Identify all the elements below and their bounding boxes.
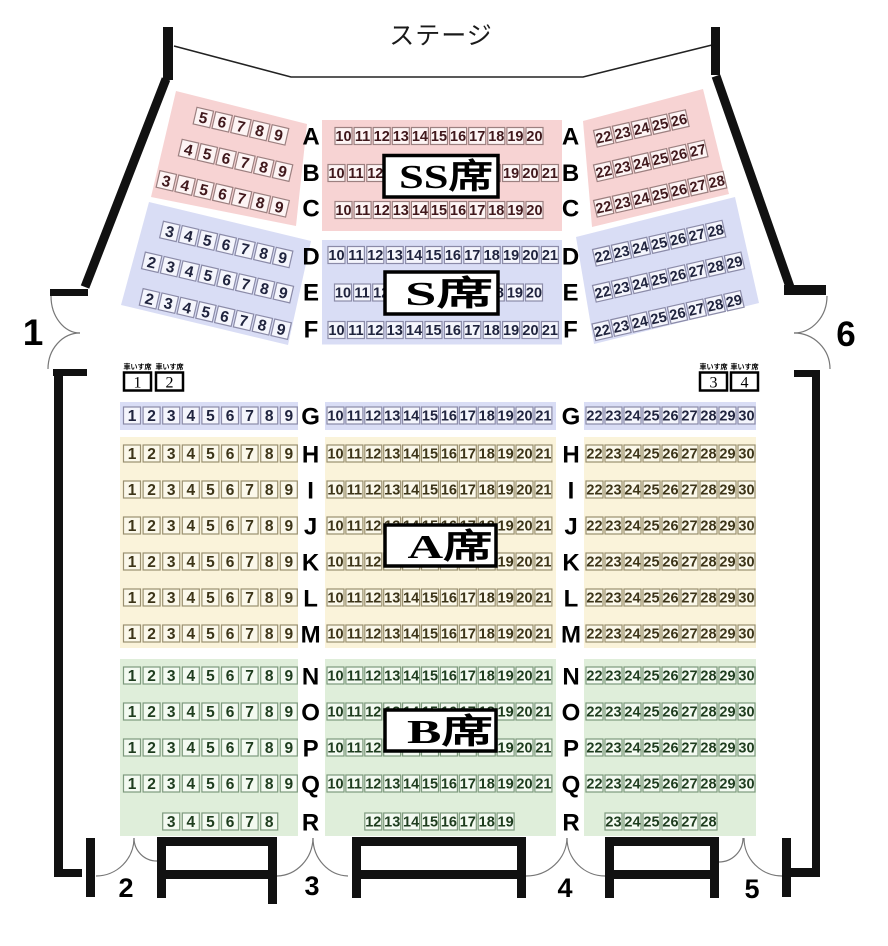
svg-text:20: 20 bbox=[516, 447, 532, 463]
svg-text:20: 20 bbox=[526, 286, 542, 302]
svg-text:30: 30 bbox=[738, 627, 754, 643]
svg-text:A: A bbox=[562, 123, 579, 150]
svg-text:19: 19 bbox=[507, 203, 523, 219]
svg-text:11: 11 bbox=[347, 409, 362, 425]
svg-text:17: 17 bbox=[460, 591, 476, 607]
svg-text:28: 28 bbox=[700, 741, 716, 757]
svg-text:B席: B席 bbox=[407, 713, 493, 751]
svg-text:2: 2 bbox=[147, 668, 156, 685]
svg-text:10: 10 bbox=[327, 591, 343, 607]
svg-text:D: D bbox=[562, 243, 579, 270]
svg-text:24: 24 bbox=[624, 409, 640, 425]
svg-text:I: I bbox=[568, 477, 575, 504]
svg-text:19: 19 bbox=[498, 815, 514, 831]
svg-text:15: 15 bbox=[425, 323, 441, 339]
svg-text:18: 18 bbox=[479, 483, 495, 499]
svg-text:Q: Q bbox=[562, 771, 581, 798]
svg-text:29: 29 bbox=[719, 741, 735, 757]
svg-text:K: K bbox=[302, 549, 320, 576]
svg-text:12: 12 bbox=[365, 815, 381, 831]
svg-text:14: 14 bbox=[406, 248, 422, 264]
svg-text:28: 28 bbox=[700, 669, 716, 685]
svg-text:27: 27 bbox=[681, 741, 697, 757]
svg-text:19: 19 bbox=[498, 705, 514, 721]
svg-text:22: 22 bbox=[586, 591, 602, 607]
svg-text:7: 7 bbox=[245, 776, 254, 793]
svg-text:30: 30 bbox=[738, 555, 754, 571]
svg-text:11: 11 bbox=[347, 447, 362, 463]
svg-text:18: 18 bbox=[488, 129, 504, 145]
svg-text:5: 5 bbox=[206, 518, 215, 535]
svg-text:1: 1 bbox=[23, 312, 44, 353]
svg-text:10: 10 bbox=[328, 323, 344, 339]
svg-text:7: 7 bbox=[245, 814, 254, 831]
svg-text:17: 17 bbox=[460, 483, 476, 499]
svg-text:20: 20 bbox=[516, 777, 532, 793]
svg-text:27: 27 bbox=[681, 627, 697, 643]
svg-text:25: 25 bbox=[643, 777, 659, 793]
svg-text:27: 27 bbox=[681, 815, 697, 831]
svg-text:22: 22 bbox=[586, 409, 602, 425]
svg-text:6: 6 bbox=[226, 482, 235, 499]
svg-text:19: 19 bbox=[507, 286, 523, 302]
svg-text:7: 7 bbox=[245, 668, 254, 685]
svg-text:4: 4 bbox=[741, 375, 749, 392]
svg-text:29: 29 bbox=[719, 705, 735, 721]
svg-text:28: 28 bbox=[706, 297, 725, 316]
svg-text:24: 24 bbox=[624, 741, 640, 757]
svg-text:5: 5 bbox=[744, 874, 759, 904]
svg-text:23: 23 bbox=[605, 741, 621, 757]
svg-text:C: C bbox=[562, 195, 579, 222]
svg-text:21: 21 bbox=[535, 519, 551, 535]
svg-text:19: 19 bbox=[498, 627, 514, 643]
svg-text:14: 14 bbox=[403, 815, 419, 831]
svg-text:9: 9 bbox=[284, 626, 293, 643]
svg-text:27: 27 bbox=[681, 669, 697, 685]
svg-text:13: 13 bbox=[384, 591, 400, 607]
svg-text:30: 30 bbox=[738, 591, 754, 607]
svg-text:23: 23 bbox=[605, 447, 621, 463]
svg-text:30: 30 bbox=[738, 519, 754, 535]
svg-text:22: 22 bbox=[586, 483, 602, 499]
svg-text:15: 15 bbox=[422, 669, 438, 685]
svg-text:A席: A席 bbox=[408, 528, 493, 566]
svg-text:E: E bbox=[562, 279, 578, 306]
svg-text:30: 30 bbox=[738, 741, 754, 757]
svg-text:25: 25 bbox=[643, 409, 659, 425]
svg-text:25: 25 bbox=[643, 627, 659, 643]
svg-text:29: 29 bbox=[719, 627, 735, 643]
svg-text:H: H bbox=[302, 441, 319, 468]
svg-text:26: 26 bbox=[662, 705, 678, 721]
svg-text:21: 21 bbox=[535, 591, 551, 607]
svg-text:O: O bbox=[301, 699, 320, 726]
svg-text:13: 13 bbox=[384, 409, 400, 425]
svg-text:15: 15 bbox=[422, 483, 438, 499]
svg-text:25: 25 bbox=[643, 669, 659, 685]
svg-text:23: 23 bbox=[605, 705, 621, 721]
svg-text:12: 12 bbox=[365, 669, 381, 685]
svg-text:F: F bbox=[304, 316, 319, 343]
svg-text:12: 12 bbox=[365, 591, 381, 607]
svg-text:6: 6 bbox=[226, 626, 235, 643]
svg-text:16: 16 bbox=[441, 591, 457, 607]
svg-text:24: 24 bbox=[624, 815, 640, 831]
svg-text:2: 2 bbox=[147, 482, 156, 499]
svg-text:20: 20 bbox=[522, 166, 538, 182]
svg-text:12: 12 bbox=[374, 203, 390, 219]
svg-text:7: 7 bbox=[245, 590, 254, 607]
svg-text:21: 21 bbox=[535, 483, 551, 499]
svg-text:24: 24 bbox=[624, 519, 640, 535]
svg-text:16: 16 bbox=[445, 323, 461, 339]
svg-text:M: M bbox=[561, 621, 581, 648]
svg-text:17: 17 bbox=[469, 203, 485, 219]
svg-text:15: 15 bbox=[431, 129, 447, 145]
svg-text:28: 28 bbox=[700, 519, 716, 535]
svg-text:20: 20 bbox=[526, 129, 542, 145]
svg-text:23: 23 bbox=[605, 555, 621, 571]
svg-text:30: 30 bbox=[738, 409, 754, 425]
svg-text:3: 3 bbox=[304, 871, 319, 901]
svg-text:30: 30 bbox=[738, 777, 754, 793]
svg-text:3: 3 bbox=[167, 740, 176, 757]
svg-text:10: 10 bbox=[327, 705, 343, 721]
svg-text:10: 10 bbox=[327, 741, 343, 757]
svg-text:29: 29 bbox=[719, 555, 735, 571]
svg-text:18: 18 bbox=[479, 669, 495, 685]
svg-text:16: 16 bbox=[445, 248, 461, 264]
svg-text:7: 7 bbox=[245, 408, 254, 425]
svg-text:J: J bbox=[304, 513, 317, 540]
svg-text:16: 16 bbox=[441, 815, 457, 831]
svg-text:8: 8 bbox=[265, 518, 274, 535]
svg-text:10: 10 bbox=[335, 129, 351, 145]
svg-text:19: 19 bbox=[507, 129, 523, 145]
svg-text:17: 17 bbox=[460, 777, 476, 793]
svg-text:19: 19 bbox=[498, 519, 514, 535]
svg-text:28: 28 bbox=[700, 777, 716, 793]
svg-text:17: 17 bbox=[460, 409, 476, 425]
svg-text:11: 11 bbox=[355, 129, 370, 145]
svg-text:1: 1 bbox=[128, 482, 137, 499]
svg-text:車いす席: 車いす席 bbox=[731, 362, 759, 371]
svg-text:18: 18 bbox=[484, 248, 500, 264]
svg-text:10: 10 bbox=[327, 519, 343, 535]
svg-text:14: 14 bbox=[412, 203, 428, 219]
svg-text:8: 8 bbox=[265, 446, 274, 463]
svg-text:11: 11 bbox=[355, 203, 370, 219]
svg-text:15: 15 bbox=[431, 203, 447, 219]
svg-text:27: 27 bbox=[681, 519, 697, 535]
svg-text:23: 23 bbox=[605, 519, 621, 535]
svg-text:15: 15 bbox=[425, 248, 441, 264]
svg-text:22: 22 bbox=[586, 669, 602, 685]
svg-text:10: 10 bbox=[328, 248, 344, 264]
svg-text:10: 10 bbox=[327, 555, 343, 571]
svg-text:14: 14 bbox=[403, 483, 419, 499]
svg-text:5: 5 bbox=[206, 668, 215, 685]
svg-text:21: 21 bbox=[535, 741, 551, 757]
svg-text:3: 3 bbox=[167, 408, 176, 425]
svg-text:6: 6 bbox=[226, 704, 235, 721]
svg-text:ステージ: ステージ bbox=[389, 22, 493, 50]
svg-text:17: 17 bbox=[460, 627, 476, 643]
svg-text:15: 15 bbox=[422, 627, 438, 643]
svg-text:19: 19 bbox=[498, 555, 514, 571]
svg-text:R: R bbox=[562, 809, 579, 836]
svg-text:23: 23 bbox=[605, 777, 621, 793]
svg-text:22: 22 bbox=[586, 741, 602, 757]
svg-text:2: 2 bbox=[147, 776, 156, 793]
svg-text:11: 11 bbox=[347, 741, 362, 757]
svg-text:8: 8 bbox=[265, 704, 274, 721]
svg-text:20: 20 bbox=[516, 741, 532, 757]
svg-text:8: 8 bbox=[265, 408, 274, 425]
svg-text:1: 1 bbox=[128, 668, 137, 685]
svg-text:2: 2 bbox=[147, 590, 156, 607]
svg-text:23: 23 bbox=[605, 815, 621, 831]
svg-text:6: 6 bbox=[226, 446, 235, 463]
svg-text:9: 9 bbox=[284, 590, 293, 607]
svg-text:9: 9 bbox=[284, 554, 293, 571]
svg-text:9: 9 bbox=[284, 518, 293, 535]
svg-text:19: 19 bbox=[498, 741, 514, 757]
svg-text:F: F bbox=[563, 316, 578, 343]
svg-text:21: 21 bbox=[535, 555, 551, 571]
svg-text:4: 4 bbox=[186, 776, 195, 793]
svg-text:25: 25 bbox=[643, 519, 659, 535]
svg-text:D: D bbox=[302, 243, 319, 270]
svg-text:17: 17 bbox=[460, 815, 476, 831]
svg-text:4: 4 bbox=[557, 873, 572, 903]
svg-text:P: P bbox=[303, 735, 319, 762]
svg-text:2: 2 bbox=[147, 446, 156, 463]
svg-text:10: 10 bbox=[328, 166, 344, 182]
svg-text:21: 21 bbox=[542, 323, 558, 339]
svg-text:8: 8 bbox=[265, 554, 274, 571]
svg-text:3: 3 bbox=[167, 482, 176, 499]
svg-text:5: 5 bbox=[206, 482, 215, 499]
svg-text:2: 2 bbox=[118, 873, 133, 903]
svg-text:19: 19 bbox=[498, 409, 514, 425]
svg-text:22: 22 bbox=[586, 777, 602, 793]
svg-text:17: 17 bbox=[464, 323, 480, 339]
svg-text:9: 9 bbox=[284, 668, 293, 685]
svg-text:17: 17 bbox=[460, 447, 476, 463]
svg-text:1: 1 bbox=[128, 408, 137, 425]
svg-text:17: 17 bbox=[460, 669, 476, 685]
svg-text:10: 10 bbox=[335, 203, 351, 219]
svg-text:13: 13 bbox=[387, 323, 403, 339]
svg-text:車いす席: 車いす席 bbox=[156, 362, 184, 371]
svg-text:26: 26 bbox=[662, 409, 678, 425]
svg-text:28: 28 bbox=[700, 483, 716, 499]
svg-text:23: 23 bbox=[605, 483, 621, 499]
svg-text:13: 13 bbox=[384, 815, 400, 831]
svg-text:8: 8 bbox=[265, 776, 274, 793]
svg-text:16: 16 bbox=[441, 483, 457, 499]
svg-text:G: G bbox=[301, 403, 320, 430]
svg-text:20: 20 bbox=[522, 323, 538, 339]
svg-text:10: 10 bbox=[327, 777, 343, 793]
svg-text:8: 8 bbox=[265, 814, 274, 831]
svg-text:15: 15 bbox=[422, 777, 438, 793]
svg-text:26: 26 bbox=[662, 777, 678, 793]
svg-text:2: 2 bbox=[166, 375, 174, 392]
svg-text:9: 9 bbox=[284, 408, 293, 425]
svg-text:7: 7 bbox=[245, 626, 254, 643]
svg-text:22: 22 bbox=[586, 627, 602, 643]
svg-text:18: 18 bbox=[479, 409, 495, 425]
svg-text:3: 3 bbox=[167, 518, 176, 535]
svg-text:28: 28 bbox=[700, 555, 716, 571]
svg-text:1: 1 bbox=[134, 375, 142, 392]
svg-text:14: 14 bbox=[406, 323, 422, 339]
svg-text:30: 30 bbox=[738, 669, 754, 685]
svg-text:10: 10 bbox=[327, 669, 343, 685]
svg-text:21: 21 bbox=[535, 705, 551, 721]
svg-text:26: 26 bbox=[662, 591, 678, 607]
svg-text:18: 18 bbox=[479, 815, 495, 831]
svg-text:14: 14 bbox=[403, 627, 419, 643]
svg-text:12: 12 bbox=[367, 166, 383, 182]
svg-text:1: 1 bbox=[128, 518, 137, 535]
svg-text:29: 29 bbox=[725, 292, 744, 311]
svg-text:23: 23 bbox=[605, 591, 621, 607]
svg-text:24: 24 bbox=[624, 669, 640, 685]
svg-text:10: 10 bbox=[327, 627, 343, 643]
svg-text:3: 3 bbox=[167, 668, 176, 685]
svg-text:30: 30 bbox=[738, 705, 754, 721]
svg-text:26: 26 bbox=[662, 627, 678, 643]
svg-text:N: N bbox=[302, 663, 319, 690]
svg-text:22: 22 bbox=[586, 519, 602, 535]
svg-text:車いす席: 車いす席 bbox=[700, 362, 728, 371]
svg-text:3: 3 bbox=[167, 704, 176, 721]
svg-text:13: 13 bbox=[384, 777, 400, 793]
svg-text:29: 29 bbox=[719, 409, 735, 425]
svg-text:21: 21 bbox=[535, 777, 551, 793]
svg-text:29: 29 bbox=[719, 483, 735, 499]
svg-text:16: 16 bbox=[441, 669, 457, 685]
svg-text:14: 14 bbox=[403, 409, 419, 425]
svg-text:9: 9 bbox=[284, 740, 293, 757]
svg-text:28: 28 bbox=[700, 705, 716, 721]
svg-text:5: 5 bbox=[206, 408, 215, 425]
svg-text:9: 9 bbox=[284, 776, 293, 793]
svg-text:13: 13 bbox=[384, 627, 400, 643]
svg-text:S席: S席 bbox=[405, 275, 493, 313]
svg-text:C: C bbox=[302, 195, 319, 222]
svg-text:21: 21 bbox=[535, 627, 551, 643]
svg-text:8: 8 bbox=[265, 590, 274, 607]
svg-text:14: 14 bbox=[403, 447, 419, 463]
svg-text:R: R bbox=[302, 809, 319, 836]
svg-text:6: 6 bbox=[226, 518, 235, 535]
svg-text:29: 29 bbox=[719, 519, 735, 535]
svg-text:4: 4 bbox=[186, 814, 195, 831]
svg-text:K: K bbox=[562, 549, 580, 576]
svg-text:2: 2 bbox=[147, 518, 156, 535]
svg-text:12: 12 bbox=[374, 129, 390, 145]
svg-text:28: 28 bbox=[700, 591, 716, 607]
svg-text:20: 20 bbox=[516, 591, 532, 607]
svg-text:24: 24 bbox=[624, 627, 640, 643]
svg-text:1: 1 bbox=[128, 626, 137, 643]
svg-text:6: 6 bbox=[226, 590, 235, 607]
svg-text:30: 30 bbox=[738, 447, 754, 463]
svg-text:3: 3 bbox=[167, 446, 176, 463]
svg-text:Q: Q bbox=[301, 771, 320, 798]
svg-text:12: 12 bbox=[367, 248, 383, 264]
svg-text:18: 18 bbox=[484, 323, 500, 339]
svg-text:4: 4 bbox=[186, 482, 195, 499]
svg-text:5: 5 bbox=[206, 626, 215, 643]
svg-text:4: 4 bbox=[186, 704, 195, 721]
svg-text:10: 10 bbox=[327, 483, 343, 499]
svg-text:3: 3 bbox=[167, 626, 176, 643]
svg-text:14: 14 bbox=[403, 669, 419, 685]
svg-text:5: 5 bbox=[206, 554, 215, 571]
svg-text:19: 19 bbox=[498, 777, 514, 793]
svg-text:26: 26 bbox=[662, 669, 678, 685]
svg-text:3: 3 bbox=[167, 554, 176, 571]
svg-text:11: 11 bbox=[347, 519, 362, 535]
svg-text:11: 11 bbox=[347, 627, 362, 643]
svg-text:24: 24 bbox=[624, 591, 640, 607]
svg-text:8: 8 bbox=[265, 626, 274, 643]
svg-text:17: 17 bbox=[469, 129, 485, 145]
svg-text:14: 14 bbox=[412, 129, 428, 145]
svg-text:11: 11 bbox=[354, 286, 369, 302]
svg-text:H: H bbox=[562, 441, 579, 468]
svg-text:10: 10 bbox=[327, 409, 343, 425]
svg-text:2: 2 bbox=[147, 740, 156, 757]
svg-text:O: O bbox=[562, 699, 581, 726]
svg-text:I: I bbox=[307, 477, 314, 504]
svg-text:4: 4 bbox=[186, 446, 195, 463]
svg-text:21: 21 bbox=[535, 669, 551, 685]
svg-text:7: 7 bbox=[245, 740, 254, 757]
svg-text:4: 4 bbox=[186, 408, 195, 425]
svg-text:28: 28 bbox=[700, 409, 716, 425]
svg-text:5: 5 bbox=[206, 704, 215, 721]
svg-text:7: 7 bbox=[245, 482, 254, 499]
svg-text:5: 5 bbox=[206, 740, 215, 757]
svg-text:21: 21 bbox=[535, 409, 551, 425]
svg-text:9: 9 bbox=[284, 446, 293, 463]
svg-text:3: 3 bbox=[710, 375, 718, 392]
svg-text:12: 12 bbox=[365, 519, 381, 535]
svg-text:21: 21 bbox=[535, 447, 551, 463]
svg-text:18: 18 bbox=[479, 591, 495, 607]
svg-text:24: 24 bbox=[624, 555, 640, 571]
svg-text:25: 25 bbox=[643, 815, 659, 831]
svg-text:27: 27 bbox=[681, 705, 697, 721]
svg-text:19: 19 bbox=[498, 447, 514, 463]
svg-text:6: 6 bbox=[226, 814, 235, 831]
svg-text:SS席: SS席 bbox=[399, 158, 493, 196]
svg-text:11: 11 bbox=[348, 248, 363, 264]
svg-text:8: 8 bbox=[265, 668, 274, 685]
svg-text:23: 23 bbox=[605, 409, 621, 425]
svg-text:14: 14 bbox=[403, 591, 419, 607]
svg-text:18: 18 bbox=[479, 447, 495, 463]
svg-text:9: 9 bbox=[284, 704, 293, 721]
svg-text:1: 1 bbox=[128, 704, 137, 721]
